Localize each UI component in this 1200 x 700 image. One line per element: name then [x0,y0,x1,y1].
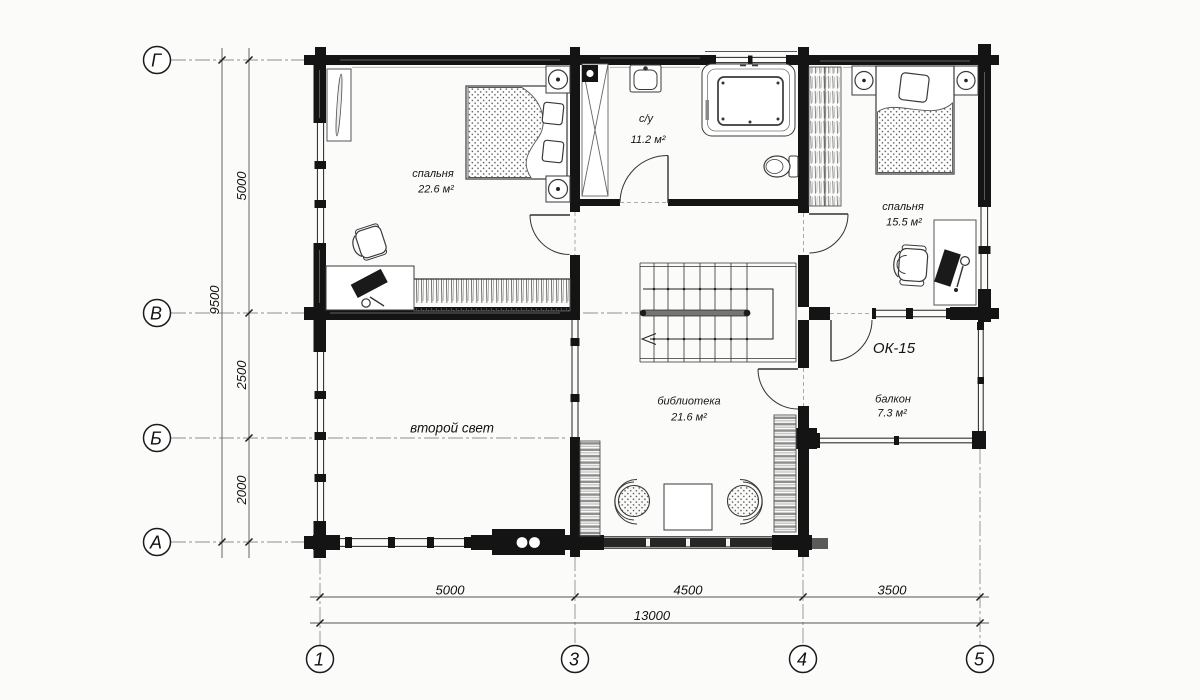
svg-text:13000: 13000 [634,608,671,623]
svg-text:3500: 3500 [878,583,908,598]
svg-text:Г: Г [151,51,162,71]
svg-text:21.6 м²: 21.6 м² [670,412,707,424]
svg-text:7.3 м²: 7.3 м² [877,408,907,420]
svg-text:спальня: спальня [412,168,454,180]
svg-text:В: В [150,304,162,324]
svg-text:балкон: балкон [875,394,911,406]
svg-text:библиотека: библиотека [657,396,720,408]
svg-text:1: 1 [314,650,324,670]
svg-text:с/у: с/у [639,113,655,125]
svg-text:4500: 4500 [674,583,704,598]
svg-text:15.5 м²: 15.5 м² [886,217,922,229]
svg-text:5: 5 [974,650,985,670]
svg-text:3: 3 [569,650,579,670]
svg-text:спальня: спальня [882,201,924,213]
svg-text:2000: 2000 [234,475,249,506]
svg-text:4: 4 [797,650,807,670]
svg-text:5000: 5000 [436,583,466,598]
svg-text:9500: 9500 [207,285,222,315]
svg-text:Б: Б [150,429,162,449]
svg-text:второй свет: второй свет [410,421,494,436]
svg-text:А: А [149,533,162,553]
svg-text:ОК-15: ОК-15 [873,340,916,357]
svg-text:22.6 м²: 22.6 м² [417,184,454,196]
svg-text:5000: 5000 [234,171,249,201]
svg-text:2500: 2500 [234,360,249,391]
svg-text:11.2 м²: 11.2 м² [631,134,666,146]
